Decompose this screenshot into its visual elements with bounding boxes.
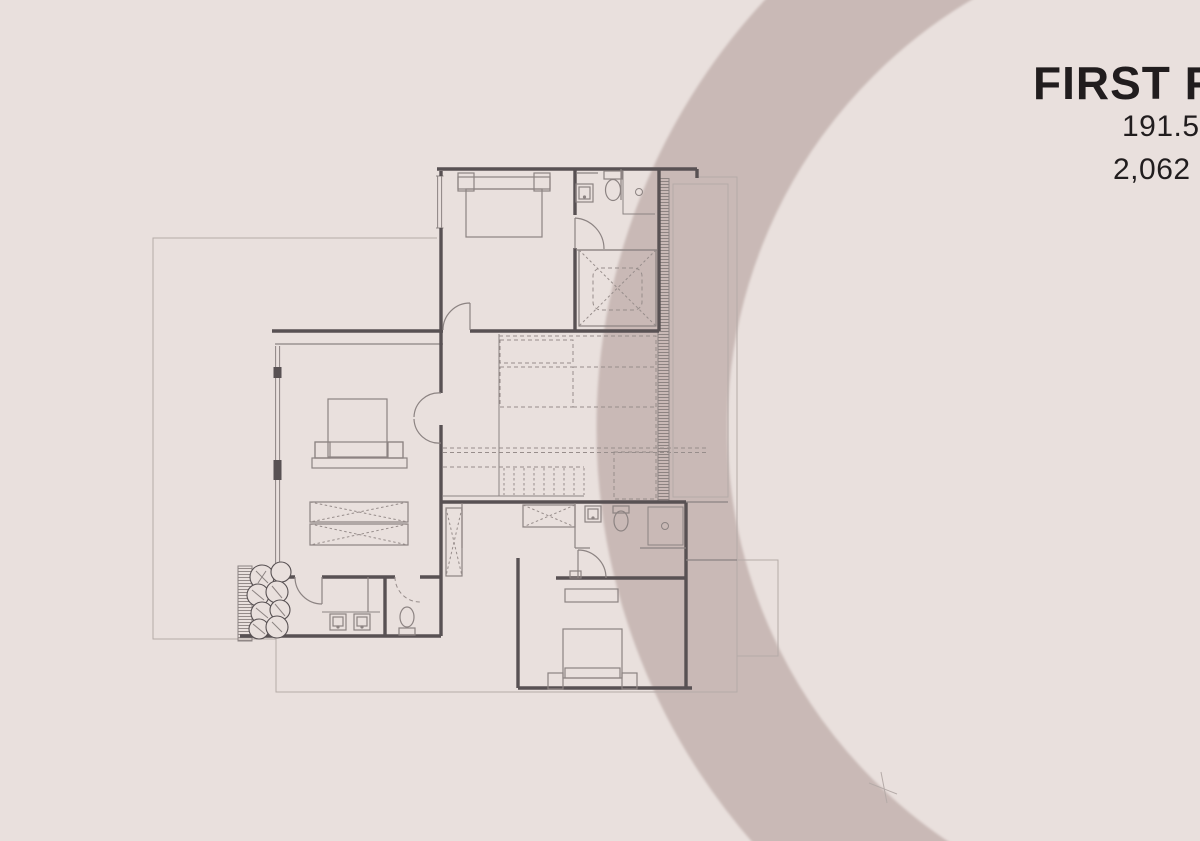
slide: FIRST FLOOR 191.53 2,062	[0, 0, 1200, 841]
windows	[275, 176, 444, 577]
doors	[295, 218, 606, 604]
wall-piers	[274, 367, 282, 578]
sink-bath-1	[576, 184, 593, 202]
sofa-bed-left-room	[312, 399, 407, 468]
page-title: FIRST FLOOR	[1033, 56, 1200, 110]
toilet-bath-1	[604, 171, 622, 201]
area-imperial: 2,062	[1113, 153, 1191, 187]
door-bedroom-1	[575, 218, 604, 249]
door-suite-1	[443, 303, 470, 330]
door-wc-swing	[395, 577, 420, 602]
plants	[247, 562, 291, 639]
stairs	[443, 334, 584, 496]
toilet-wc	[399, 607, 415, 635]
bed-1	[458, 173, 550, 237]
double-door-living	[414, 393, 441, 443]
area-metric: 191.53	[1122, 110, 1200, 144]
floor-plan-canvas	[0, 0, 1200, 841]
sink-bath-2	[585, 506, 601, 522]
vanity-sinks	[322, 612, 380, 630]
door-bath-corridor	[295, 577, 322, 604]
dresser	[565, 589, 618, 602]
door-bedroom-2	[578, 550, 606, 578]
closet-corridor	[523, 505, 575, 527]
ring-graphic	[662, 0, 1200, 841]
